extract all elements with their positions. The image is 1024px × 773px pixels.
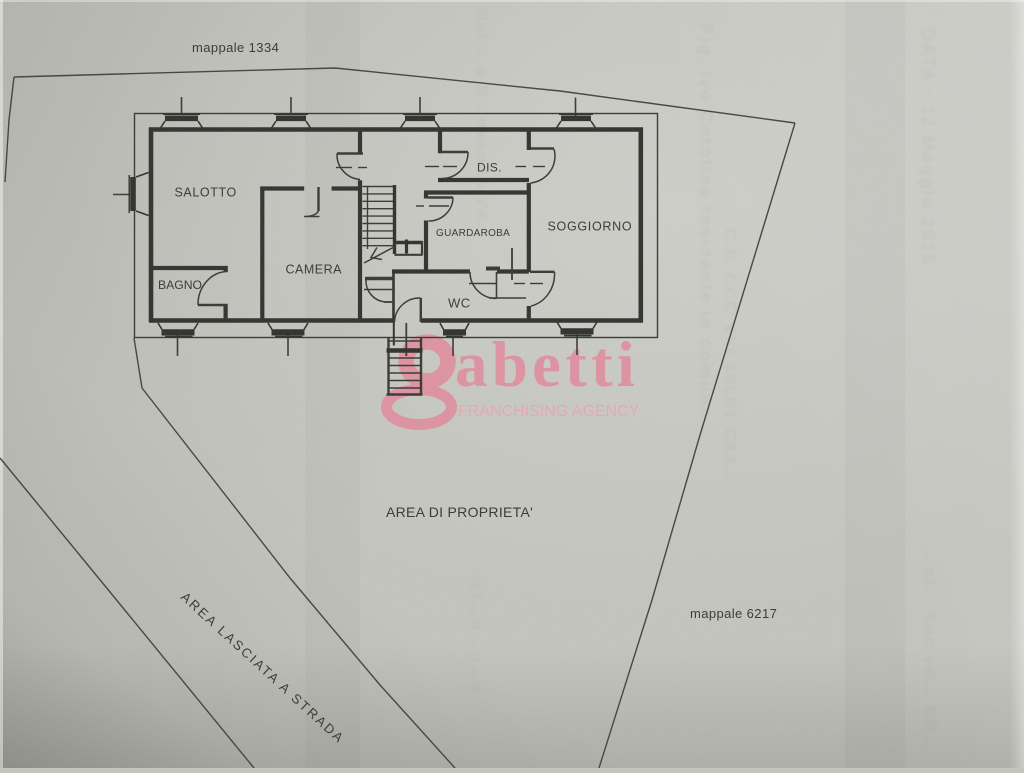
svg-text:mappale 6217: mappale 6217 bbox=[690, 606, 777, 621]
svg-text:BAGNO: BAGNO bbox=[158, 278, 202, 292]
svg-text:SALOTTO: SALOTTO bbox=[175, 186, 237, 200]
svg-text:AREA LASCIATA A STRADA: AREA LASCIATA A STRADA bbox=[178, 589, 348, 746]
svg-text:mappale 1334: mappale 1334 bbox=[192, 40, 279, 55]
svg-text:DIS.: DIS. bbox=[477, 161, 502, 175]
svg-text:CAMERA: CAMERA bbox=[286, 263, 343, 277]
svg-text:WC: WC bbox=[448, 296, 471, 311]
svg-text:GUARDAROBA: GUARDAROBA bbox=[436, 228, 510, 239]
svg-text:AREA DI PROPRIETA': AREA DI PROPRIETA' bbox=[386, 504, 533, 520]
svg-text:SOGGIORNO: SOGGIORNO bbox=[548, 220, 633, 234]
